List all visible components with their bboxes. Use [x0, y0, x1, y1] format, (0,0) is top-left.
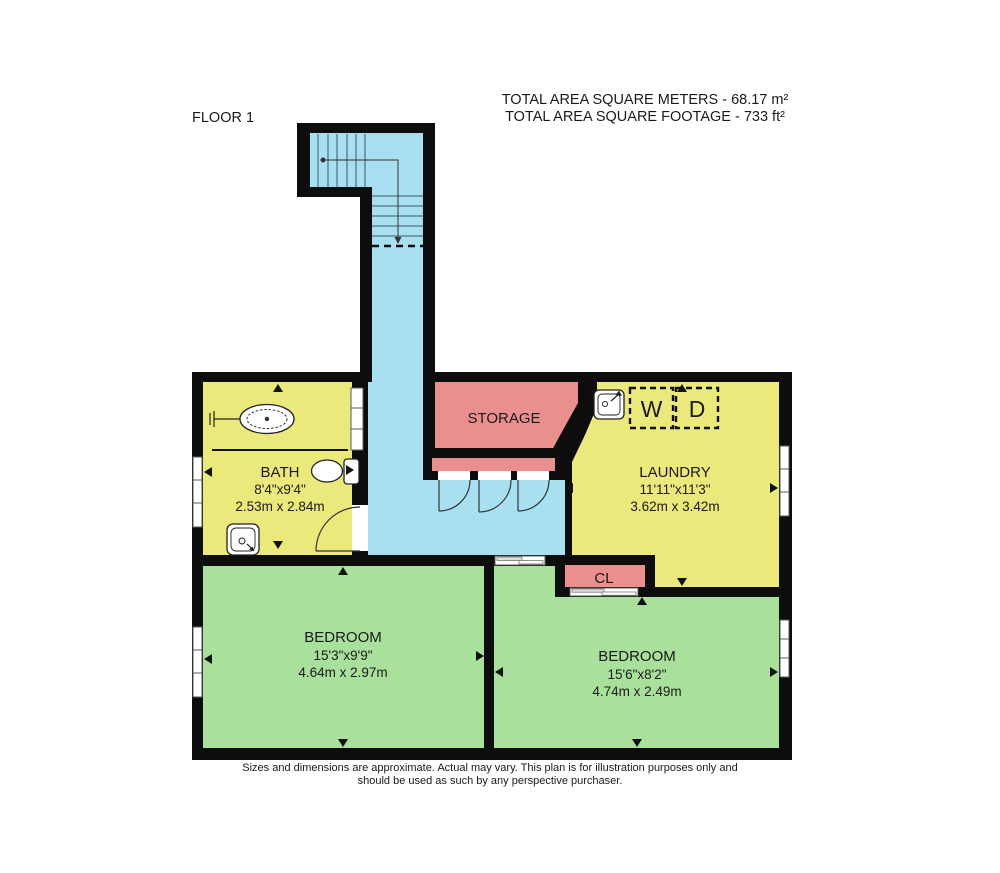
laundry-dims-ft: 11'11"x11'3" — [639, 482, 710, 497]
bedroom-left-name: BEDROOM — [304, 629, 382, 646]
disclaimer-line2: should be used as such by any perspectiv… — [358, 775, 623, 787]
floor-label: FLOOR 1 — [192, 110, 254, 126]
bath-sink-icon — [227, 524, 259, 555]
sliding-door-icon-bedroom-right — [495, 556, 545, 565]
floor-plan-page: W D FLOOR 1 TOTAL AREA SQUARE METERS - 6… — [0, 0, 1000, 873]
bath-dims-ft: 8'4"x9'4" — [254, 482, 306, 497]
bath-name: BATH — [261, 464, 300, 481]
toilet-icon — [312, 459, 360, 484]
storage-closet-strip — [432, 458, 555, 471]
total-area-sqm: TOTAL AREA SQUARE METERS - 68.17 m² — [502, 92, 789, 108]
bedroom-left-dims-m: 4.64m x 2.97m — [298, 665, 387, 680]
window-icon-bedroom-right — [780, 620, 789, 677]
window-icon-bath-left — [193, 457, 202, 527]
bedroom-right-dims-m: 4.74m x 2.49m — [592, 684, 681, 699]
bath-dims-m: 2.53m x 2.84m — [235, 499, 324, 514]
laundry-label: LAUNDRY 11'11"x11'3" 3.62m x 3.42m — [630, 464, 719, 514]
laundry-sink-icon — [594, 390, 624, 419]
total-area-sqft: TOTAL AREA SQUARE FOOTAGE - 733 ft² — [505, 109, 785, 125]
bedroom-right-name: BEDROOM — [598, 648, 676, 665]
sliding-door-icon-bath — [351, 388, 363, 450]
window-icon-laundry-right — [780, 446, 789, 516]
washer-label: W — [641, 396, 663, 422]
laundry-dims-m: 3.62m x 3.42m — [630, 499, 719, 514]
storage-name: STORAGE — [467, 410, 540, 427]
closet-name: CL — [594, 570, 613, 587]
dryer-label: D — [689, 396, 706, 422]
disclaimer-line1: Sizes and dimensions are approximate. Ac… — [242, 762, 737, 774]
sliding-door-icon-closet — [570, 588, 638, 596]
floor-plan-canvas: W D FLOOR 1 TOTAL AREA SQUARE METERS - 6… — [0, 0, 1000, 873]
bedroom-left-dims-ft: 15'3"x9'9" — [313, 648, 372, 663]
laundry-name: LAUNDRY — [639, 464, 710, 481]
bedroom-right-dims-ft: 15'6"x8'2" — [607, 667, 666, 682]
window-icon-bedroom-left — [193, 627, 202, 697]
